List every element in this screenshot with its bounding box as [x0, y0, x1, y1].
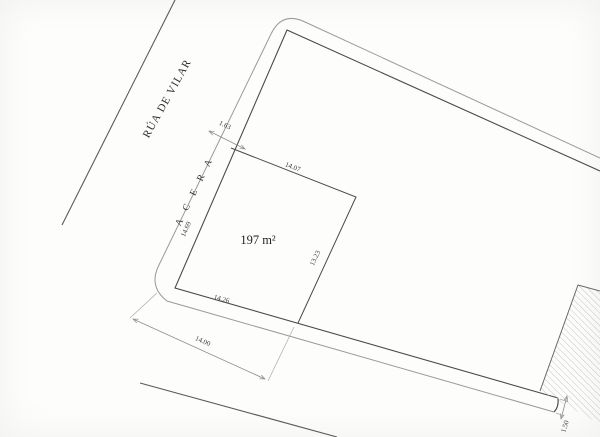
dim-label-frontage: 14.00 — [194, 334, 212, 348]
block-boundary — [175, 30, 600, 398]
dim-label-sidewalk-bottom: 1.50 — [560, 419, 571, 433]
sidewalk-label: A C E R A — [174, 154, 217, 227]
parcel-area-label: 197 m² — [240, 233, 276, 247]
lower-street-edge-line — [140, 383, 337, 437]
dim-label-parcel-right: 13.23 — [308, 249, 322, 267]
dim-line-frontage — [133, 319, 265, 379]
street-name-label: RÚA DE VILAR — [141, 57, 194, 140]
dim-ext-frontage-right — [268, 327, 294, 381]
site-plan-drawing: 1.63 14.00 1.50 14.07 14.69 13.23 14.26 … — [0, 0, 600, 437]
site-plan-page: 1.63 14.00 1.50 14.07 14.69 13.23 14.26 … — [0, 0, 600, 437]
curb-outline — [155, 18, 600, 412]
dim-label-parcel-bottom: 14.26 — [213, 293, 231, 305]
dim-ext-frontage-left — [130, 293, 157, 318]
